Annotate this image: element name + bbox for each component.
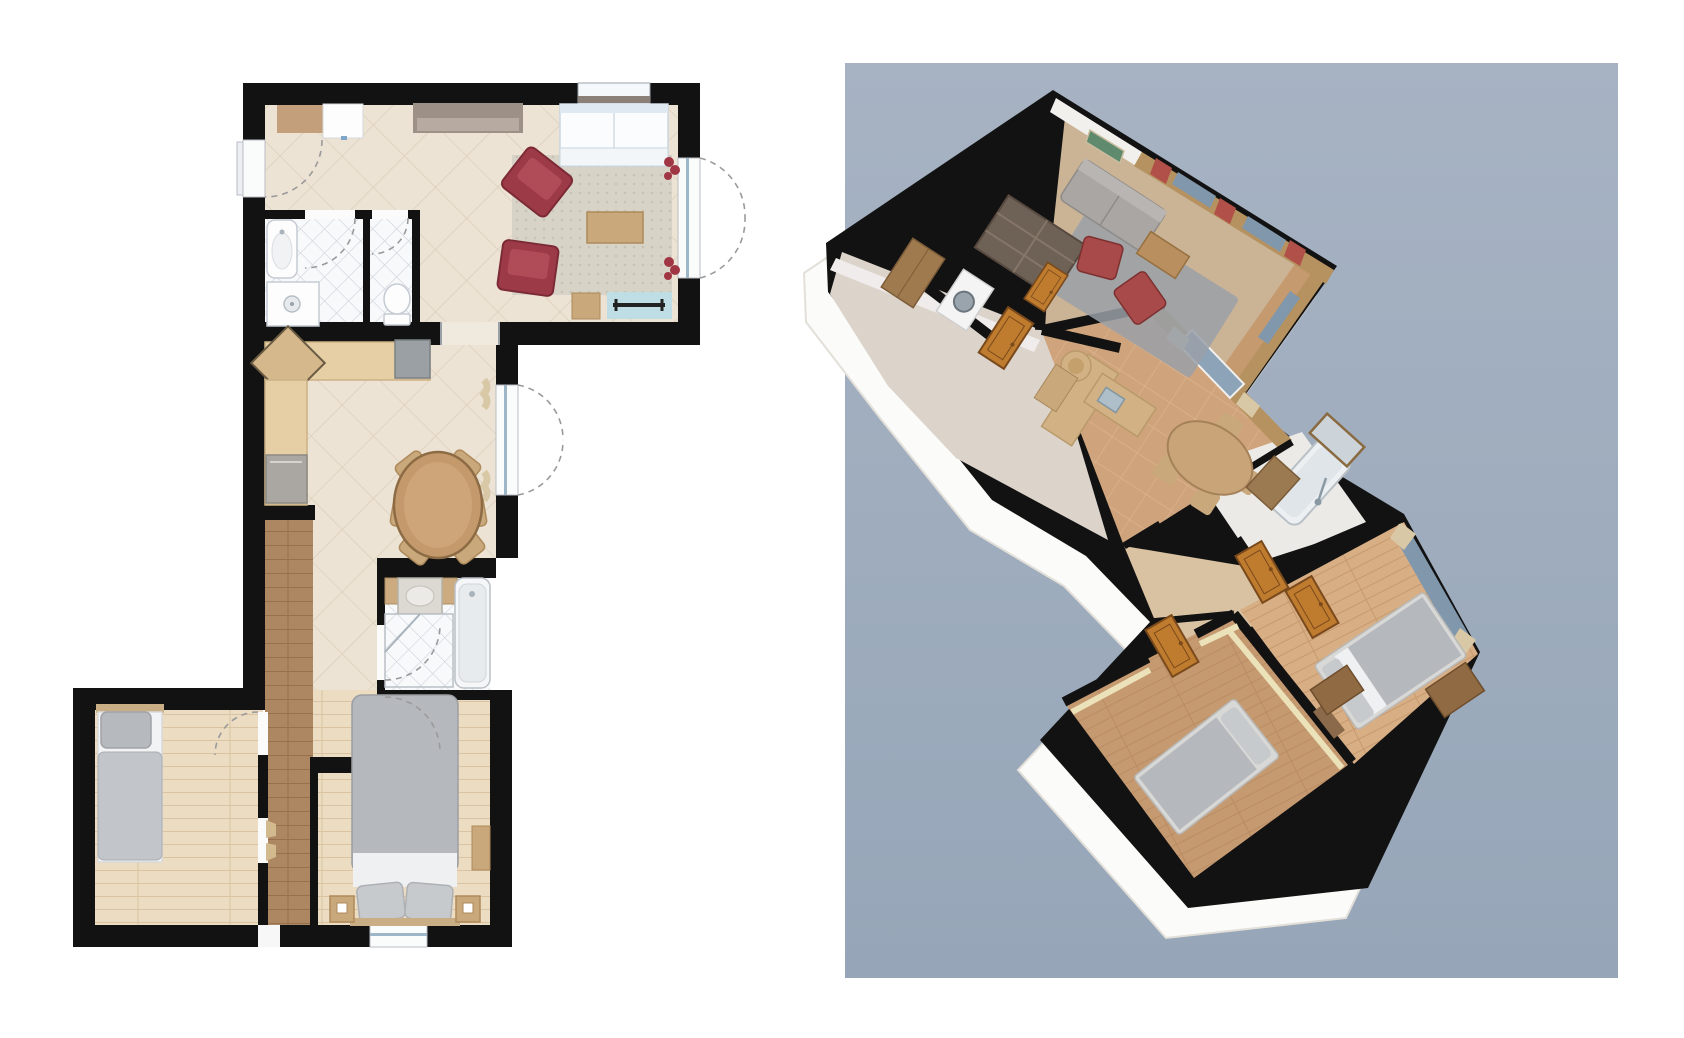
table-top-highlight bbox=[404, 462, 472, 548]
living-french-window bbox=[678, 158, 700, 278]
view-3d bbox=[804, 63, 1618, 978]
sink-appliance bbox=[395, 340, 430, 378]
bathroom2-door-opening bbox=[377, 625, 385, 680]
sideboard bbox=[413, 103, 523, 133]
teal-doormat-bench bbox=[607, 292, 672, 319]
hall-runner-floor bbox=[265, 520, 313, 925]
corner-sofa bbox=[560, 104, 668, 166]
bathtub bbox=[455, 578, 490, 688]
living-top-window bbox=[578, 83, 650, 105]
armchair bbox=[497, 239, 559, 296]
nightstand bbox=[456, 896, 480, 922]
screenshot-canvas bbox=[0, 0, 1684, 1038]
coffee-table bbox=[587, 212, 643, 243]
toilet bbox=[384, 284, 410, 325]
living-dining-passage bbox=[440, 322, 500, 345]
entry-door-opening bbox=[237, 140, 265, 197]
master-bottom-window bbox=[370, 925, 427, 947]
bathroom-door-opening bbox=[305, 210, 355, 219]
wardrobe bbox=[472, 826, 490, 870]
corridor-bottom-gap bbox=[258, 925, 280, 947]
single-bed bbox=[96, 704, 164, 862]
dining-set bbox=[390, 448, 488, 567]
curtain-glyph bbox=[484, 472, 487, 500]
nightstand bbox=[330, 896, 354, 922]
white-cabinet bbox=[323, 104, 363, 138]
cabinet-detail bbox=[341, 136, 347, 140]
wc-door-opening bbox=[372, 210, 408, 219]
shower bbox=[267, 282, 319, 326]
fridge bbox=[266, 455, 307, 503]
shower-2 bbox=[385, 614, 453, 687]
washbasin bbox=[267, 220, 297, 278]
floor-plan-2d bbox=[73, 83, 745, 947]
console-cabinet bbox=[277, 105, 323, 133]
curtain-glyph bbox=[484, 380, 487, 408]
floorplan-image bbox=[0, 0, 1684, 1038]
small-bedroom-door-opening bbox=[258, 712, 268, 755]
side-stool bbox=[572, 293, 600, 319]
